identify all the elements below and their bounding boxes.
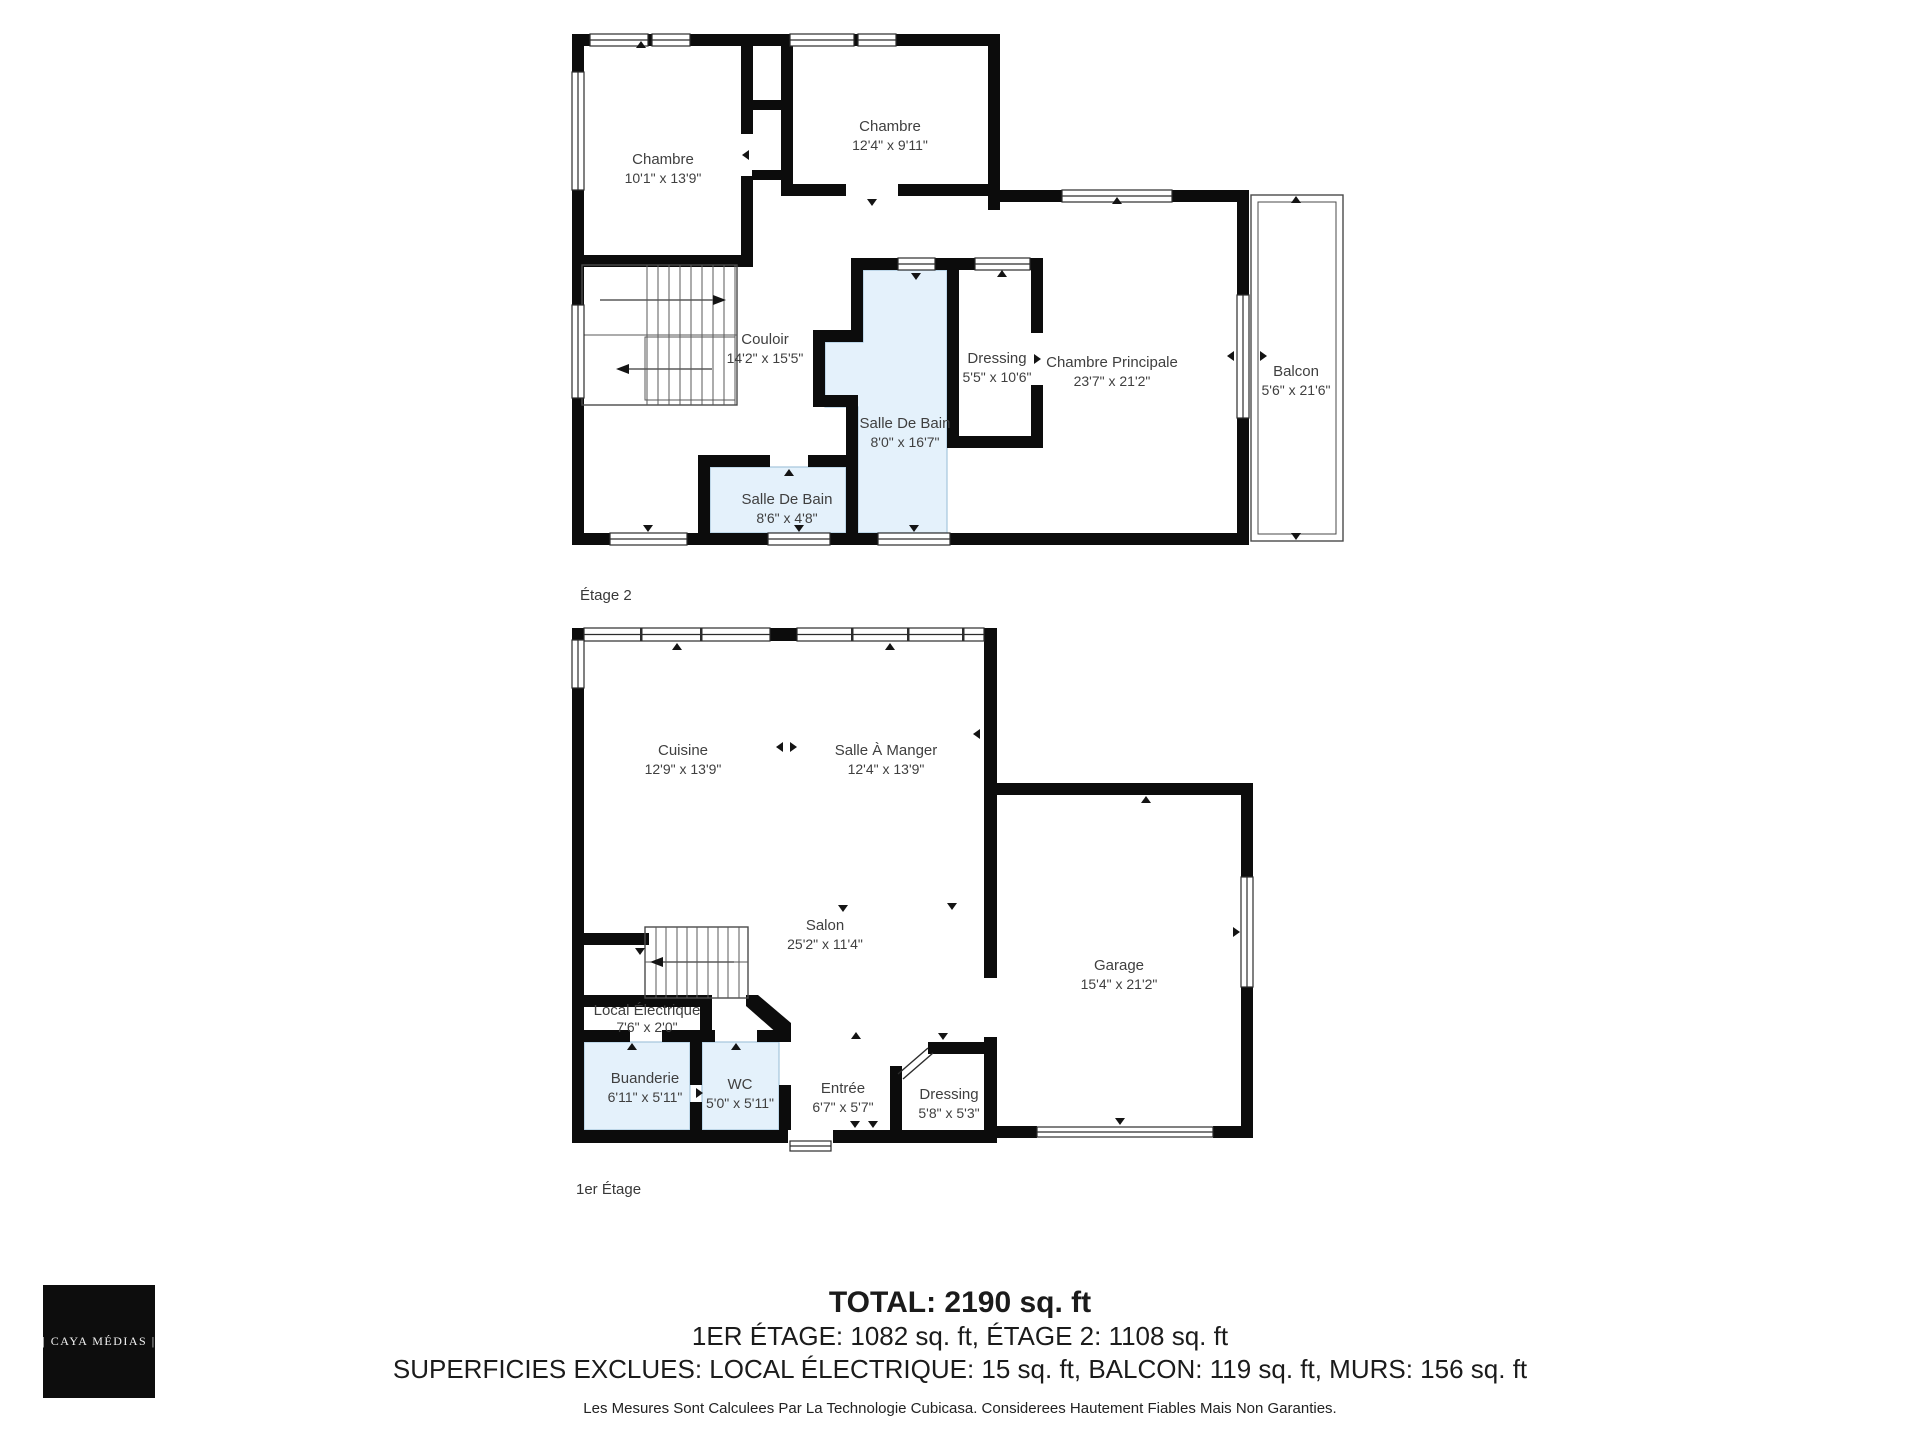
room-label-garage: Garage: [1094, 957, 1144, 974]
room-label-chambre-principale: Chambre Principale: [1046, 354, 1178, 371]
window-mullion: [640, 628, 643, 641]
floor2-caption: Étage 2: [580, 587, 632, 604]
floor1-stairs: [645, 927, 748, 998]
door-marker-icon: [1115, 1118, 1125, 1125]
room-label-salle-a-manger: Salle À Manger: [835, 742, 938, 759]
room-label-local-electrique: Local Électrique: [594, 1002, 701, 1019]
floorplan-drawing: Chambre 10'1" x 13'9" Chambre 12'4" x 9'…: [0, 0, 1920, 1440]
door-marker-icon: [776, 742, 783, 752]
window-mullion: [907, 628, 910, 641]
room-dims-dressing2: 5'5" x 10'6": [963, 369, 1032, 385]
summary-exclusions-line: SUPERFICIES EXCLUES: LOCAL ÉLECTRIQUE: 1…: [0, 1353, 1920, 1386]
door-marker-icon: [947, 903, 957, 910]
room-dims-chambre1: 10'1" x 13'9": [625, 170, 702, 186]
window-mullion: [851, 628, 854, 641]
room-label-salle-de-bain-2: Salle De Bain: [742, 491, 833, 508]
company-logo-text: | CAYA MÉDIAS |: [42, 1334, 155, 1349]
room-label-entree: Entrée: [821, 1080, 865, 1097]
room-label-wc: WC: [728, 1076, 753, 1093]
room-label-buanderie: Buanderie: [611, 1070, 679, 1087]
room-label-salle-de-bain: Salle De Bain: [860, 415, 951, 432]
door-marker-icon: [1141, 796, 1151, 803]
room-label-dressing2: Dressing: [967, 350, 1026, 367]
room-dims-salle-de-bain-2: 8'6" x 4'8": [756, 510, 817, 526]
floor1-caption: 1er Étage: [576, 1181, 641, 1198]
floor2-stairs: [582, 265, 737, 405]
room-label-salon: Salon: [806, 917, 844, 934]
room-dims-salle-a-manger: 12'4" x 13'9": [848, 761, 925, 777]
door-marker-icon: [1227, 351, 1234, 361]
floorplan-page: Chambre 10'1" x 13'9" Chambre 12'4" x 9'…: [0, 0, 1920, 1440]
door-marker-icon: [643, 525, 653, 532]
door-marker-icon: [850, 1121, 860, 1128]
door-marker-icon: [867, 199, 877, 206]
door-marker-icon: [973, 729, 980, 739]
door-marker-icon: [868, 1121, 878, 1128]
door-marker-icon: [635, 948, 645, 955]
floor1-plan: Cuisine 12'9" x 13'9" Salle À Manger 12'…: [572, 628, 1253, 1198]
door-marker-icon: [851, 1032, 861, 1039]
room-label-balcon: Balcon: [1273, 363, 1319, 380]
door-marker-icon: [1291, 196, 1301, 203]
door-marker-icon: [838, 905, 848, 912]
summary-disclaimer: Les Mesures Sont Calculees Par La Techno…: [0, 1400, 1920, 1417]
room-dims-cuisine: 12'9" x 13'9": [645, 761, 722, 777]
room-dims-entree: 6'7" x 5'7": [812, 1099, 873, 1115]
room-dims-dressing1: 5'8" x 5'3": [918, 1105, 979, 1121]
door-marker-icon: [1034, 354, 1041, 364]
window-mullion: [962, 628, 965, 641]
window-mullion: [700, 628, 703, 641]
door-marker-icon: [672, 643, 682, 650]
room-dims-garage: 15'4" x 21'2": [1081, 976, 1158, 992]
room-label-chambre1: Chambre: [632, 151, 694, 168]
door-marker-icon: [885, 643, 895, 650]
room-dims-local-electrique: 7'6" x 2'0": [616, 1019, 677, 1035]
door-marker-icon: [938, 1033, 948, 1040]
room-dims-chambre2: 12'4" x 9'11": [852, 137, 928, 153]
room-dims-balcon: 5'6" x 21'6": [1262, 382, 1331, 398]
room-label-couloir: Couloir: [741, 331, 789, 348]
room-label-cuisine: Cuisine: [658, 742, 708, 759]
summary-floors-line: 1ER ÉTAGE: 1082 sq. ft, ÉTAGE 2: 1108 sq…: [0, 1320, 1920, 1353]
company-logo: | CAYA MÉDIAS |: [43, 1285, 155, 1398]
room-dims-buanderie: 6'11" x 5'11": [608, 1089, 683, 1105]
door-marker-icon: [1233, 927, 1240, 937]
room-dims-salon: 25'2" x 11'4": [787, 936, 863, 952]
door-marker-icon: [742, 150, 749, 160]
room-label-dressing1: Dressing: [919, 1086, 978, 1103]
summary-block: TOTAL: 2190 sq. ft 1ER ÉTAGE: 1082 sq. f…: [0, 1286, 1920, 1417]
door-marker-icon: [997, 270, 1007, 277]
room-dims-couloir: 14'2" x 15'5": [727, 350, 804, 366]
room-dims-chambre-principale: 23'7" x 21'2": [1074, 373, 1151, 389]
room-dims-wc: 5'0" x 5'11": [706, 1095, 774, 1111]
door-marker-icon: [1291, 533, 1301, 540]
floor2-plan: Chambre 10'1" x 13'9" Chambre 12'4" x 9'…: [572, 34, 1343, 604]
room-label-chambre2: Chambre: [859, 118, 921, 135]
door-marker-icon: [790, 742, 797, 752]
door-marker-icon: [1260, 351, 1267, 361]
room-dims-salle-de-bain: 8'0" x 16'7": [871, 434, 940, 450]
summary-total: TOTAL: 2190 sq. ft: [0, 1286, 1920, 1320]
